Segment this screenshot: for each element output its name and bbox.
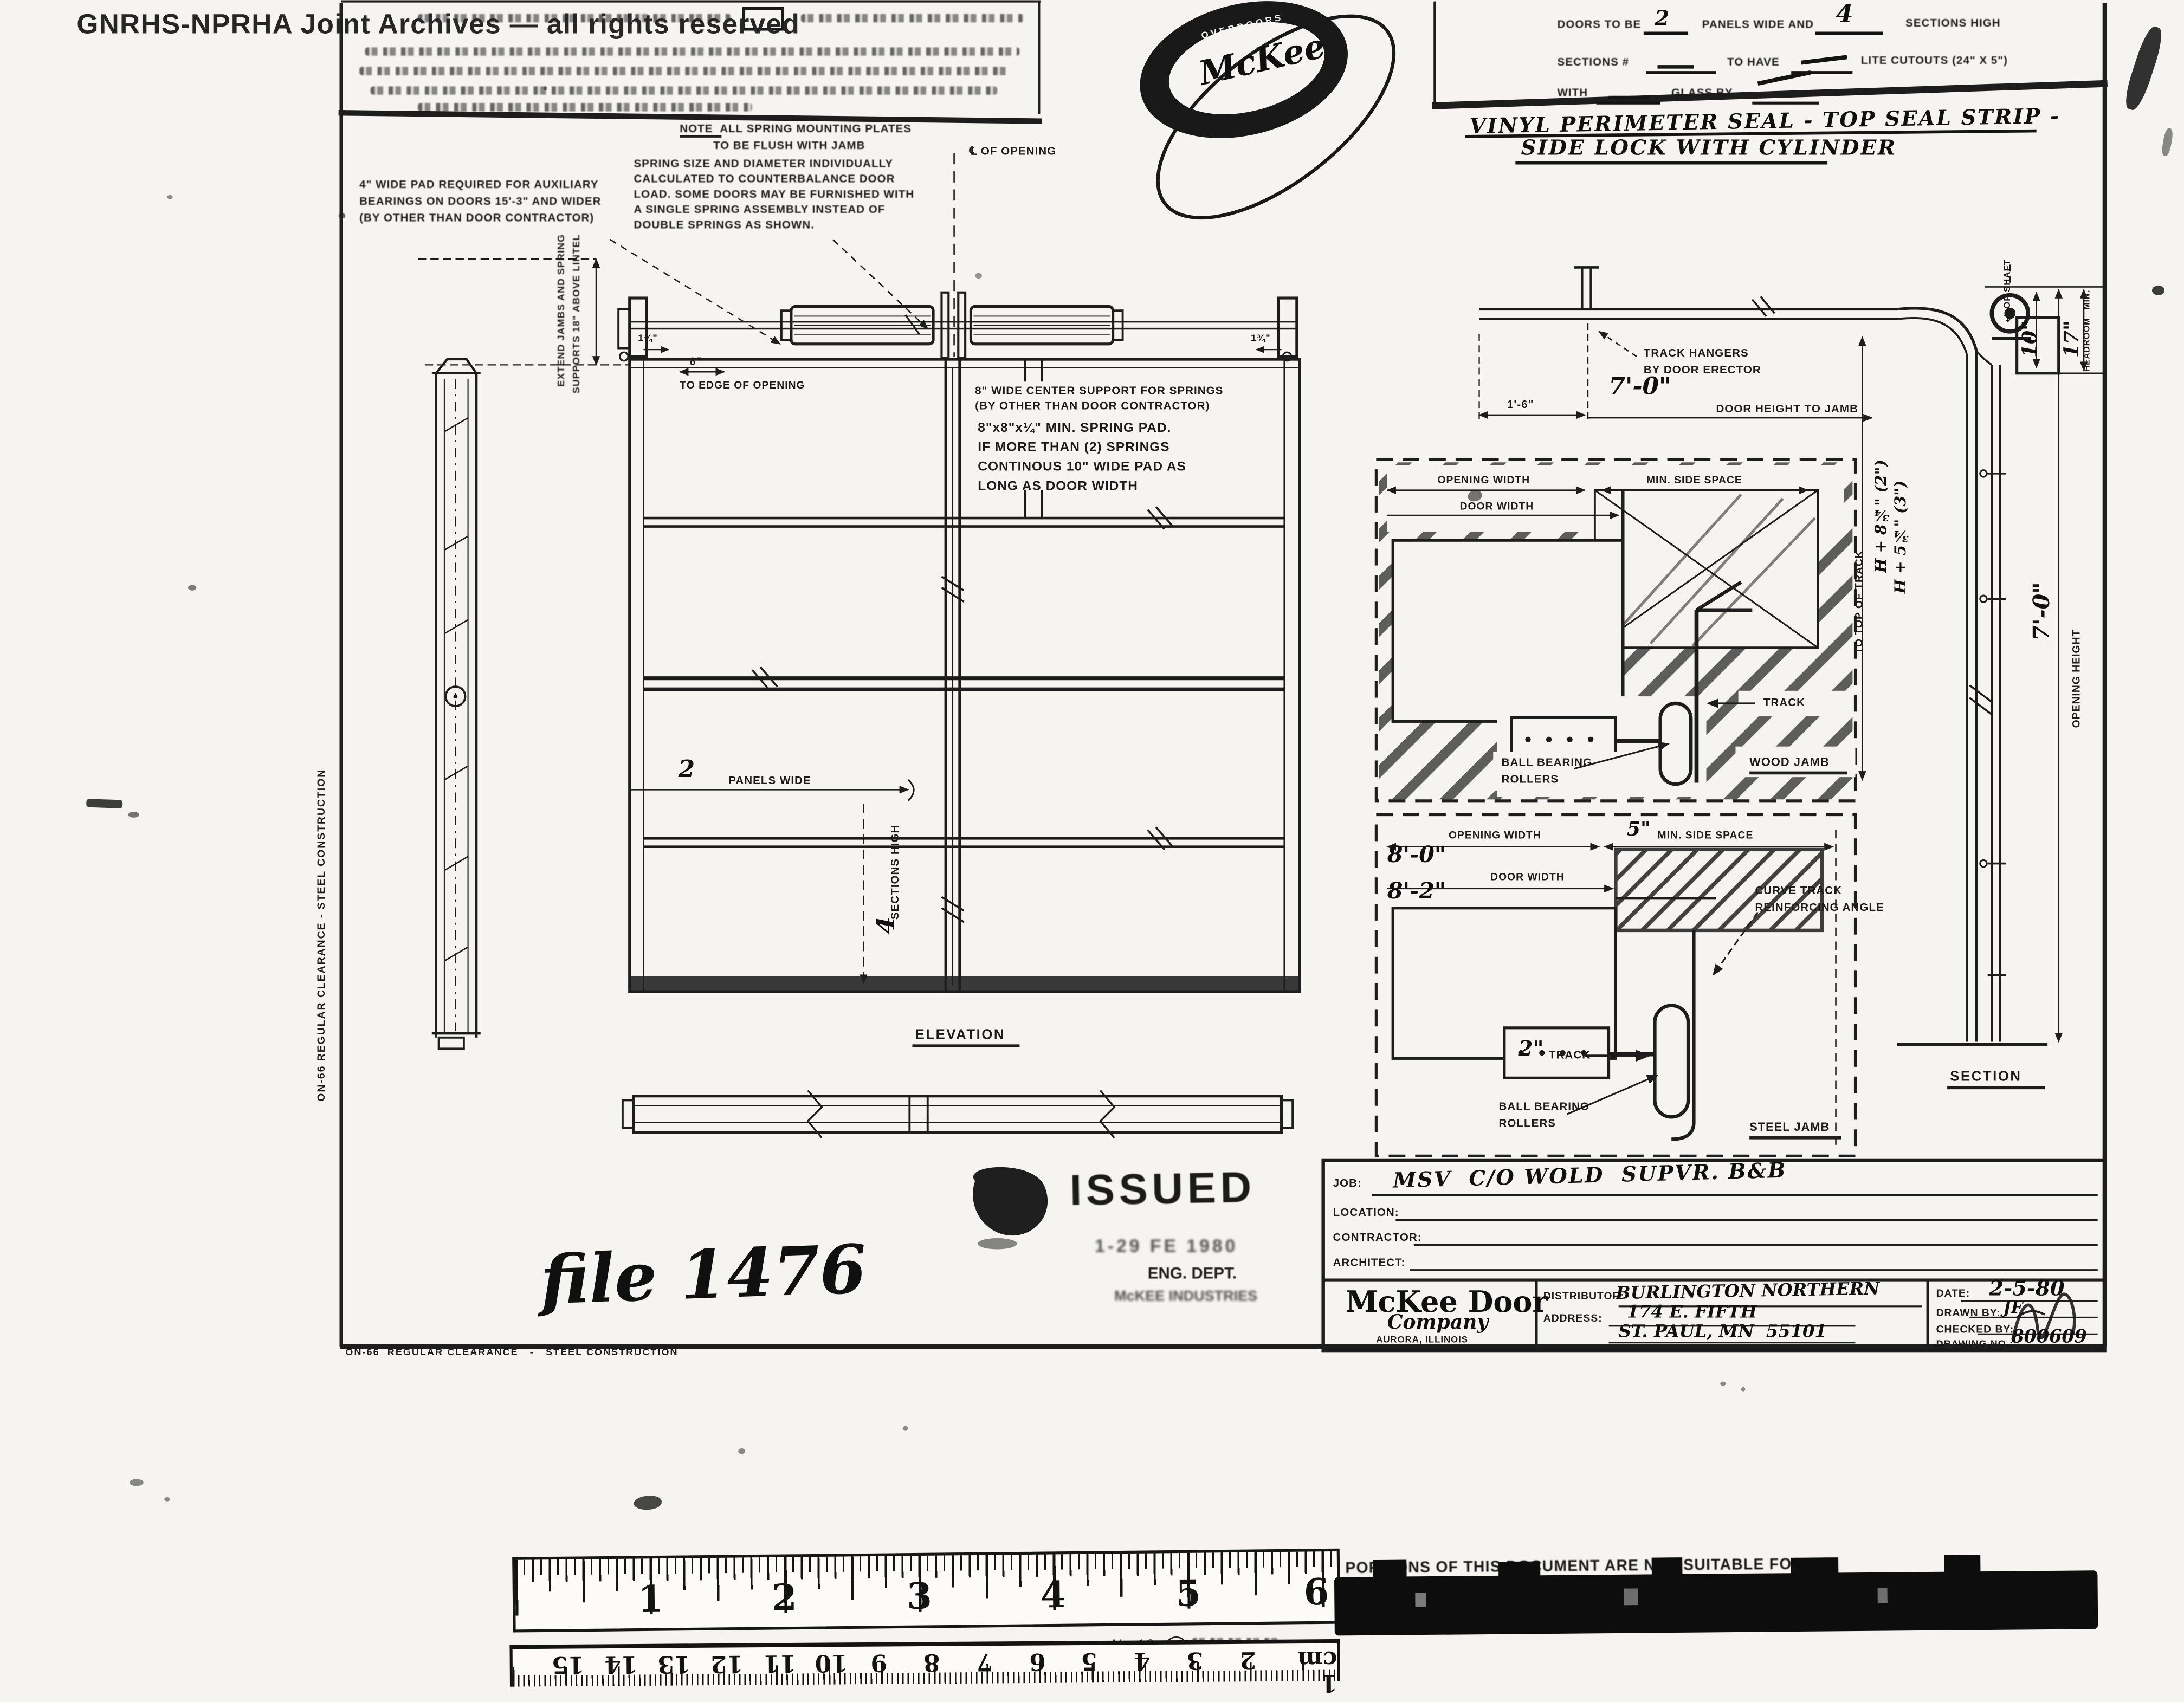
wj-rollers-1: BALL BEARING: [1502, 756, 1592, 770]
illegible-text-row: [359, 67, 1007, 75]
inch-ruler: 1 2 3 4 5 6: [512, 1549, 1340, 1633]
note-line: 4" WIDE PAD REQUIRED FOR AUXILIARY: [359, 178, 599, 192]
spec-panels-mid: PANELS WIDE AND: [1702, 18, 1814, 31]
speck: [167, 195, 172, 199]
tick-dim-right: 1¾": [1251, 334, 1271, 346]
scanned-drawing-sheet: GNRHS-NPRHA Joint Archives — all rights …: [0, 0, 2184, 1680]
job-label: JOB:: [1333, 1177, 1362, 1190]
note-line: BEARINGS ON DOORS 15'-3" AND WIDER: [359, 195, 601, 209]
inch-number: 5: [1175, 1576, 1201, 1613]
note-line: LOAD. SOME DOORS MAY BE FURNISHED WITH: [634, 188, 914, 202]
contractor-label: CONTRACTOR:: [1333, 1231, 1422, 1245]
wj-hand-2in: H + 8¾" (2"): [1872, 460, 1890, 573]
cm-number: 7: [977, 1648, 993, 1672]
date-label: DATE:: [1936, 1287, 1970, 1299]
inch-number: 4: [1041, 1578, 1066, 1614]
note-line: CALCULATED TO COUNTERBALANCE DOOR: [634, 173, 895, 186]
spec-panels-value: 2: [1655, 5, 1669, 30]
checked-by-label: CHECKED BY:: [1936, 1323, 2014, 1336]
distributor-label: DISTRIBUTOR:: [1543, 1290, 1625, 1302]
cm-number: 15: [552, 1652, 585, 1675]
speck: [975, 273, 982, 279]
redaction-smudge: [1373, 1560, 1407, 1583]
margin-note-bottom: ON-66 REGULAR CLEARANCE - STEEL CONSTRUC…: [345, 1348, 678, 1360]
door-height-label: DOOR HEIGHT TO JAMB: [1716, 403, 1858, 416]
date-value: 2-5-80: [1989, 1276, 2064, 1300]
sj-curve-2: REINFORCING ANGLE: [1755, 901, 1884, 915]
architect-label: ARCHITECT:: [1333, 1256, 1406, 1270]
cm-number: 6: [1029, 1648, 1046, 1672]
speck: [128, 812, 139, 817]
wj-title: WOOD JAMB: [1749, 755, 1830, 769]
cm-number: 1 cm: [1276, 1646, 1337, 1694]
cm-number: 9: [870, 1649, 887, 1673]
speck: [543, 86, 547, 90]
redaction-gap: [1878, 1588, 1888, 1603]
sections-count: 4: [872, 916, 901, 934]
speck: [164, 1497, 170, 1502]
cm-number: 14: [604, 1651, 637, 1675]
spec-with: WITH: [1557, 86, 1588, 100]
company-city: AURORA, ILLINOIS: [1376, 1336, 1468, 1347]
edge-dim: 8": [689, 355, 702, 368]
note-line: 8" WIDE CENTER SUPPORT FOR SPRINGS: [975, 384, 1223, 398]
speck: [1741, 1387, 1746, 1392]
inch-number: 1: [638, 1582, 663, 1619]
drawing-no-label: DRAWING NO.:: [1936, 1340, 2013, 1352]
redaction-gap: [1624, 1588, 1638, 1605]
illegible-text-row: [418, 103, 752, 111]
sj-track-value: 2": [1519, 1036, 1544, 1061]
cm-number: 2: [1239, 1647, 1256, 1671]
elevation-linework: [418, 153, 1300, 1138]
note-line: IF MORE THAN (2) SPRINGS: [978, 440, 1169, 456]
note-line: (BY OTHER THAN DOOR CONTRACTOR): [975, 400, 1210, 413]
spec-lite: LITE CUTOUTS (24" X 5"): [1861, 54, 2008, 68]
cm-number: 8: [923, 1649, 940, 1673]
speck: [339, 213, 346, 218]
inch-number: 6: [1303, 1575, 1329, 1612]
cm-number: 4: [1134, 1647, 1151, 1671]
illegible-text-row: [365, 47, 1019, 55]
cm-number: 10: [815, 1649, 848, 1673]
note-line: 8"x8"x¼" MIN. SPRING PAD.: [978, 420, 1171, 436]
drawing-linework: [0, 0, 2184, 1680]
cm-number: 5: [1081, 1648, 1097, 1672]
ink-dash: [86, 799, 122, 808]
tick-dim-left: 1¾": [638, 334, 658, 346]
opening-height-label: OPENING HEIGHT: [2070, 630, 2082, 728]
wj-rollers-2: ROLLERS: [1502, 773, 1559, 786]
headroom-value: 17": [2062, 320, 2084, 358]
wj-opening: OPENING WIDTH: [1437, 474, 1530, 486]
cm-number: 12: [710, 1650, 744, 1674]
elevation-title: ELEVATION: [915, 1028, 1005, 1045]
sj-title: STEEL JAMB: [1749, 1119, 1830, 1134]
address-label: ADDRESS:: [1543, 1312, 1603, 1324]
jamb-dim: 1'-6": [1507, 398, 1534, 412]
track-hangers-1: TRACK HANGERS: [1644, 347, 1749, 360]
file-number-handwriting: file 1476: [539, 1231, 868, 1321]
redaction-smudge: [1498, 1562, 1540, 1582]
edge-label: TO EDGE OF OPENING: [680, 379, 805, 391]
spec-glass-by: GLASS BY: [1671, 86, 1733, 100]
cm-number: 13: [657, 1651, 690, 1674]
note-line: (BY OTHER THAN DOOR CONTRACTOR): [359, 212, 594, 225]
speck: [188, 585, 196, 590]
stamp-issued: ISSUED: [1069, 1166, 1256, 1212]
cm-number: 11: [763, 1650, 796, 1674]
sj-curve-1: CURVE TRACK: [1755, 884, 1842, 898]
speck: [902, 1426, 908, 1431]
redacted-notice-block: PORTIONS OF THIS DOCUMENT ARE NOT SUITAB…: [1331, 1551, 2108, 1639]
margin-note-left: ON-66 REGULAR CLEARANCE - STEEL CONSTRUC…: [315, 769, 327, 1102]
centerline-label: ℄ OF OPENING: [970, 145, 1056, 158]
door-height-value: 7'-0": [1609, 373, 1671, 401]
section-title: SECTION: [1950, 1070, 2021, 1086]
shaft-dim-value: 10": [2020, 320, 2042, 358]
company-script: Company: [1387, 1312, 1488, 1334]
sj-opening-value: 8'-0": [1387, 841, 1446, 868]
wj-hand-3in: H + 5¾" (3"): [1891, 481, 1909, 594]
steel-jamb-linework: [1376, 815, 1855, 1156]
speck: [2152, 286, 2164, 295]
sections-label: SECTIONS HIGH: [889, 825, 902, 920]
drawing-no-value: 800609: [2011, 1327, 2087, 1348]
sj-opening: OPENING WIDTH: [1449, 829, 1541, 841]
sj-side-space: MIN. SIDE SPACE: [1658, 829, 1754, 841]
wj-door: DOOR WIDTH: [1460, 500, 1534, 513]
stamp-date: 1-29 FE 1980: [1095, 1237, 1238, 1254]
speck: [1720, 1382, 1726, 1386]
sj-side-value: 5": [1627, 819, 1651, 841]
note-extend-jambs-1: EXTEND JAMBS AND SPRING: [557, 234, 569, 387]
illegible-text-row: [371, 86, 998, 94]
speck: [130, 1479, 144, 1486]
redaction-smudge: [1791, 1557, 1839, 1578]
headroom-label: HEADROOM: [2084, 318, 2093, 372]
spec-doors-pre: DOORS TO BE: [1557, 18, 1641, 31]
sj-track: TRACK: [1549, 1049, 1591, 1062]
spec-sections-post: SECTIONS HIGH: [1905, 17, 2001, 30]
spec-sections-value: 4: [1836, 0, 1853, 29]
stamp-dept: ENG. DEPT.: [1148, 1267, 1237, 1284]
address-line2: ST. PAUL, MN 55101: [1619, 1321, 1827, 1342]
note-extend-jambs-2: SUPPORTS 18" ABOVE LINTEL: [572, 234, 584, 393]
spec-hand-line2: SIDE LOCK WITH CYLINDER: [1521, 135, 1897, 160]
redaction-gap: [1415, 1593, 1426, 1607]
sj-door-value: 8'-2": [1387, 877, 1446, 904]
wj-track: TRACK: [1763, 696, 1805, 710]
ink-blob: [973, 1167, 1048, 1250]
redaction-smudge: [1944, 1555, 1980, 1577]
illegible-text-row: [801, 14, 1024, 22]
inch-number: 3: [907, 1579, 932, 1615]
sj-rollers-2: ROLLERS: [1499, 1117, 1556, 1130]
note-line: DOUBLE SPRINGS AS SHOWN.: [634, 219, 815, 232]
spec-to-have: TO HAVE: [1727, 56, 1780, 69]
inch-number: 2: [772, 1581, 797, 1617]
drawn-by-label: DRAWN BY:: [1936, 1306, 2001, 1319]
headroom-min: MIN.: [2084, 290, 2093, 310]
note-line: A SINGLE SPRING ASSEMBLY INSTEAD OF: [634, 203, 885, 217]
address-line1: 174 E. FIFTH: [1627, 1301, 1757, 1322]
wj-side-space: MIN. SIDE SPACE: [1646, 474, 1742, 486]
location-label: LOCATION:: [1333, 1206, 1399, 1220]
note-line: TO BE FLUSH WITH JAMB: [713, 139, 865, 153]
panels-label: PANELS WIDE: [728, 774, 811, 788]
speck: [738, 1448, 745, 1454]
sj-door: DOOR WIDTH: [1490, 870, 1565, 883]
drawn-by-value: JF: [2003, 1298, 2023, 1317]
note-line: LONG AS DOOR WIDTH: [978, 479, 1138, 495]
spec-sections-pre: SECTIONS #: [1557, 56, 1629, 69]
redaction-smudge: [1652, 1557, 1683, 1580]
note-line: NOTE ALL SPRING MOUNTING PLATES: [680, 122, 912, 136]
note-line: CONTINOUS 10" WIDE PAD AS: [978, 460, 1186, 475]
panels-count: 2: [679, 756, 695, 784]
sj-rollers-1: BALL BEARING: [1499, 1100, 1589, 1114]
wj-top-of-track: TO TOP OF TRACK: [1852, 550, 1865, 653]
note-line: SPRING SIZE AND DIAMETER INDIVIDUALLY: [634, 157, 893, 171]
cm-number: 3: [1187, 1647, 1204, 1671]
archive-watermark: GNRHS-NPRHA Joint Archives — all rights …: [76, 11, 800, 39]
opening-height-value: 7'-0": [2028, 582, 2054, 640]
shaft-cl-label: ℄ OF SHAFT: [2003, 259, 2014, 323]
stamp-org: McKEE INDUSTRIES: [1114, 1290, 1257, 1304]
redaction-bar: [1334, 1570, 2098, 1635]
